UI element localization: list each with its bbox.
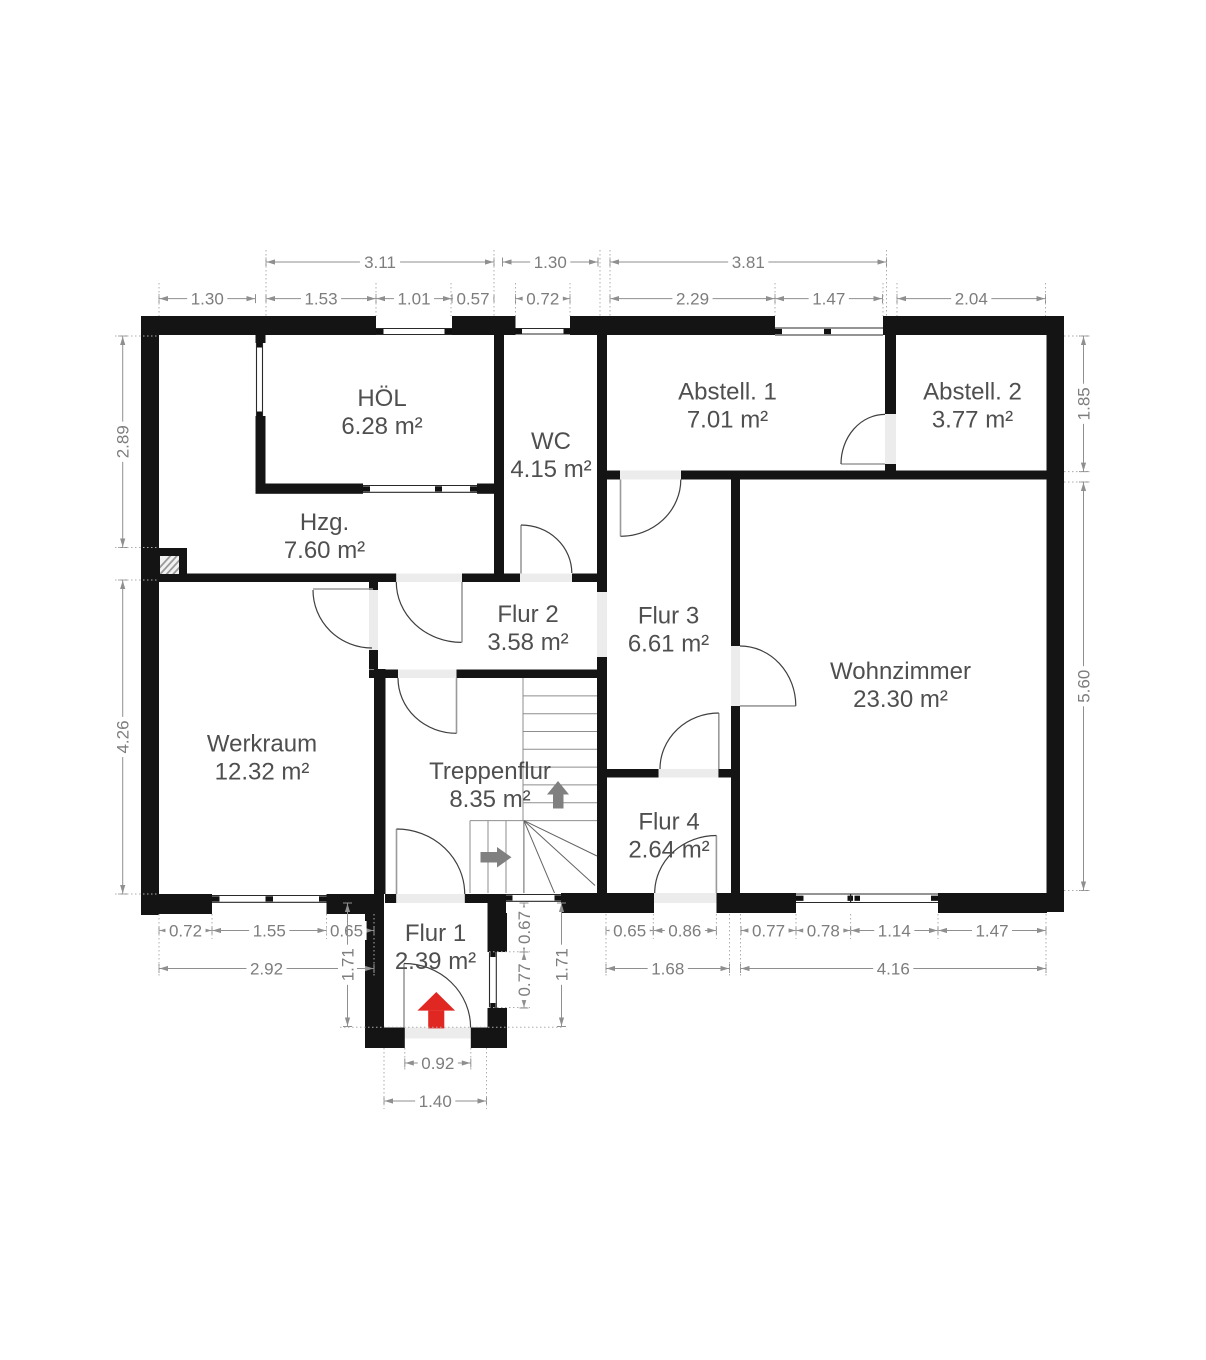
svg-text:1.53: 1.53 [304,290,337,309]
svg-text:3.81: 3.81 [732,253,765,272]
svg-text:0.86: 0.86 [668,922,701,941]
svg-text:1.71: 1.71 [553,948,572,981]
svg-text:Hzg.: Hzg. [300,509,349,536]
svg-text:4.15 m²: 4.15 m² [510,456,591,483]
svg-text:Abstell. 1: Abstell. 1 [678,379,777,406]
svg-text:1.47: 1.47 [975,922,1008,941]
svg-text:Flur 1: Flur 1 [405,920,466,947]
svg-text:Werkraum: Werkraum [207,731,317,758]
svg-text:1.85: 1.85 [1075,387,1094,420]
svg-text:1.30: 1.30 [191,290,224,309]
svg-text:1.68: 1.68 [651,960,684,979]
svg-text:WC: WC [531,428,571,455]
svg-text:HÖL: HÖL [357,385,406,412]
svg-text:3.11: 3.11 [364,253,396,272]
svg-text:6.61 m²: 6.61 m² [628,631,709,658]
svg-text:2.89: 2.89 [114,425,133,458]
svg-text:0.65: 0.65 [330,922,363,941]
svg-text:4.26: 4.26 [114,720,133,753]
svg-text:23.30 m²: 23.30 m² [853,686,948,713]
svg-text:12.32 m²: 12.32 m² [215,759,310,786]
svg-text:2.64 m²: 2.64 m² [628,837,709,864]
svg-text:1.30: 1.30 [534,253,567,272]
svg-text:0.78: 0.78 [807,922,840,941]
svg-text:0.65: 0.65 [613,922,646,941]
svg-text:3.58 m²: 3.58 m² [487,629,568,656]
svg-text:7.01 m²: 7.01 m² [687,407,768,434]
svg-text:4.16: 4.16 [877,960,910,979]
svg-text:1.14: 1.14 [878,922,911,941]
svg-text:Treppenflur: Treppenflur [429,758,551,785]
svg-text:1.01: 1.01 [397,290,430,309]
svg-text:Flur 2: Flur 2 [497,601,558,628]
svg-text:1.47: 1.47 [812,290,845,309]
svg-text:2.39 m²: 2.39 m² [395,948,476,975]
svg-text:2.92: 2.92 [250,960,283,979]
svg-text:0.72: 0.72 [169,922,202,941]
svg-text:1.40: 1.40 [419,1092,452,1111]
svg-text:2.29: 2.29 [676,290,709,309]
svg-text:0.77: 0.77 [752,922,785,941]
svg-text:0.92: 0.92 [421,1054,454,1073]
svg-text:0.57: 0.57 [456,290,489,309]
svg-text:0.72: 0.72 [526,290,559,309]
svg-text:6.28 m²: 6.28 m² [341,413,422,440]
svg-text:8.35 m²: 8.35 m² [449,786,530,813]
svg-text:2.04: 2.04 [955,290,988,309]
svg-text:Wohnzimmer: Wohnzimmer [830,658,971,685]
svg-text:1.55: 1.55 [253,922,286,941]
svg-text:5.60: 5.60 [1075,670,1094,703]
svg-text:7.60 m²: 7.60 m² [284,537,365,564]
svg-text:0.67: 0.67 [515,911,534,944]
svg-text:1.71: 1.71 [339,948,358,981]
svg-text:0.77: 0.77 [515,963,534,996]
svg-text:Abstell. 2: Abstell. 2 [923,379,1022,406]
svg-text:Flur 3: Flur 3 [638,603,699,630]
svg-text:Flur 4: Flur 4 [638,809,699,836]
svg-text:3.77 m²: 3.77 m² [932,407,1013,434]
